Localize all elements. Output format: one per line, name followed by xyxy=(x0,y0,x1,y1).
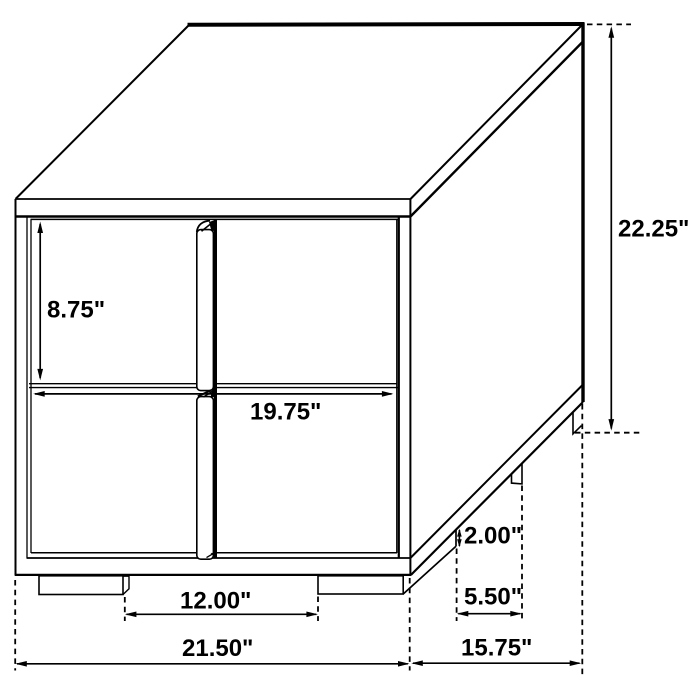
svg-text:12.00": 12.00" xyxy=(180,588,251,615)
svg-text:8.75": 8.75" xyxy=(47,297,105,324)
svg-text:21.50": 21.50" xyxy=(182,635,253,662)
svg-text:22.25": 22.25" xyxy=(618,216,689,243)
svg-text:15.75": 15.75" xyxy=(461,635,532,662)
svg-text:5.50": 5.50" xyxy=(464,584,522,611)
svg-text:19.75": 19.75" xyxy=(250,399,321,426)
svg-text:2.00": 2.00" xyxy=(464,523,522,550)
